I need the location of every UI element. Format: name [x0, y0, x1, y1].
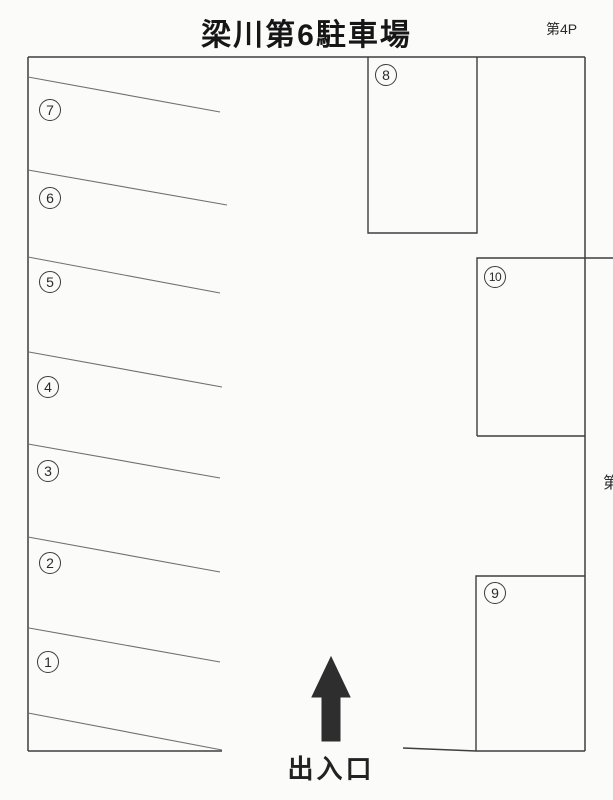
parking-map-drawing [0, 0, 613, 800]
lot-outline [28, 57, 585, 751]
stall-badge-8: 8 [375, 64, 397, 86]
boxed-stalls [368, 57, 613, 751]
stall-badge-6: 6 [39, 187, 61, 209]
stall-badge-5: 5 [39, 271, 61, 293]
stall-badge-4: 4 [37, 376, 59, 398]
stall-badge-3: 3 [37, 460, 59, 482]
stall-divider-line [28, 713, 222, 750]
stall-badge-1: 1 [37, 651, 59, 673]
stall-badge-2: 2 [39, 552, 61, 574]
stall-badge-10: 10 [484, 266, 506, 288]
adjacent-area-label-clipped: 第 [603, 469, 613, 493]
area-label-dai4p: 第4P [546, 19, 577, 39]
stall-badge-9: 9 [484, 582, 506, 604]
entrance-label: 出入口 [0, 749, 613, 786]
stall-divider-lines [28, 77, 227, 750]
entrance-arrow-icon [312, 657, 350, 741]
parking-map-page: 梁川第6駐車場 第4P 第 出入口 1 2 3 4 5 6 7 8 9 10 [0, 0, 613, 800]
stall-badge-7: 7 [39, 99, 61, 121]
page-title: 梁川第6駐車場 [0, 10, 613, 54]
